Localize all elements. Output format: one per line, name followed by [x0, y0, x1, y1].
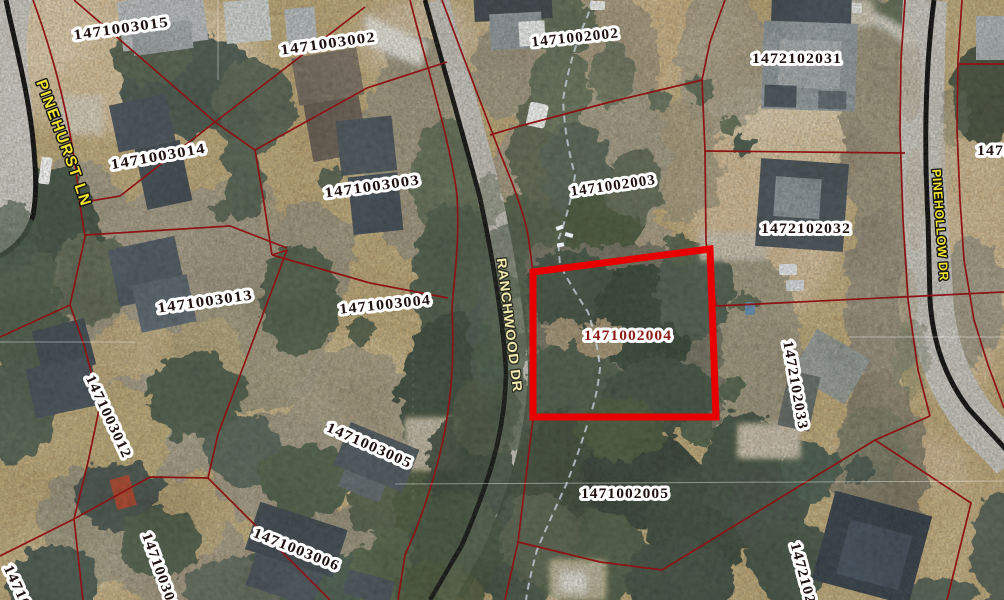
- svg-text:1471002031: 1471002031: [977, 143, 1004, 159]
- svg-text:1472102031: 1472102031: [752, 51, 842, 67]
- svg-text:1471002005: 1471002005: [581, 486, 669, 502]
- svg-text:1472102032: 1472102032: [761, 221, 851, 237]
- svg-text:1471002004: 1471002004: [584, 328, 672, 344]
